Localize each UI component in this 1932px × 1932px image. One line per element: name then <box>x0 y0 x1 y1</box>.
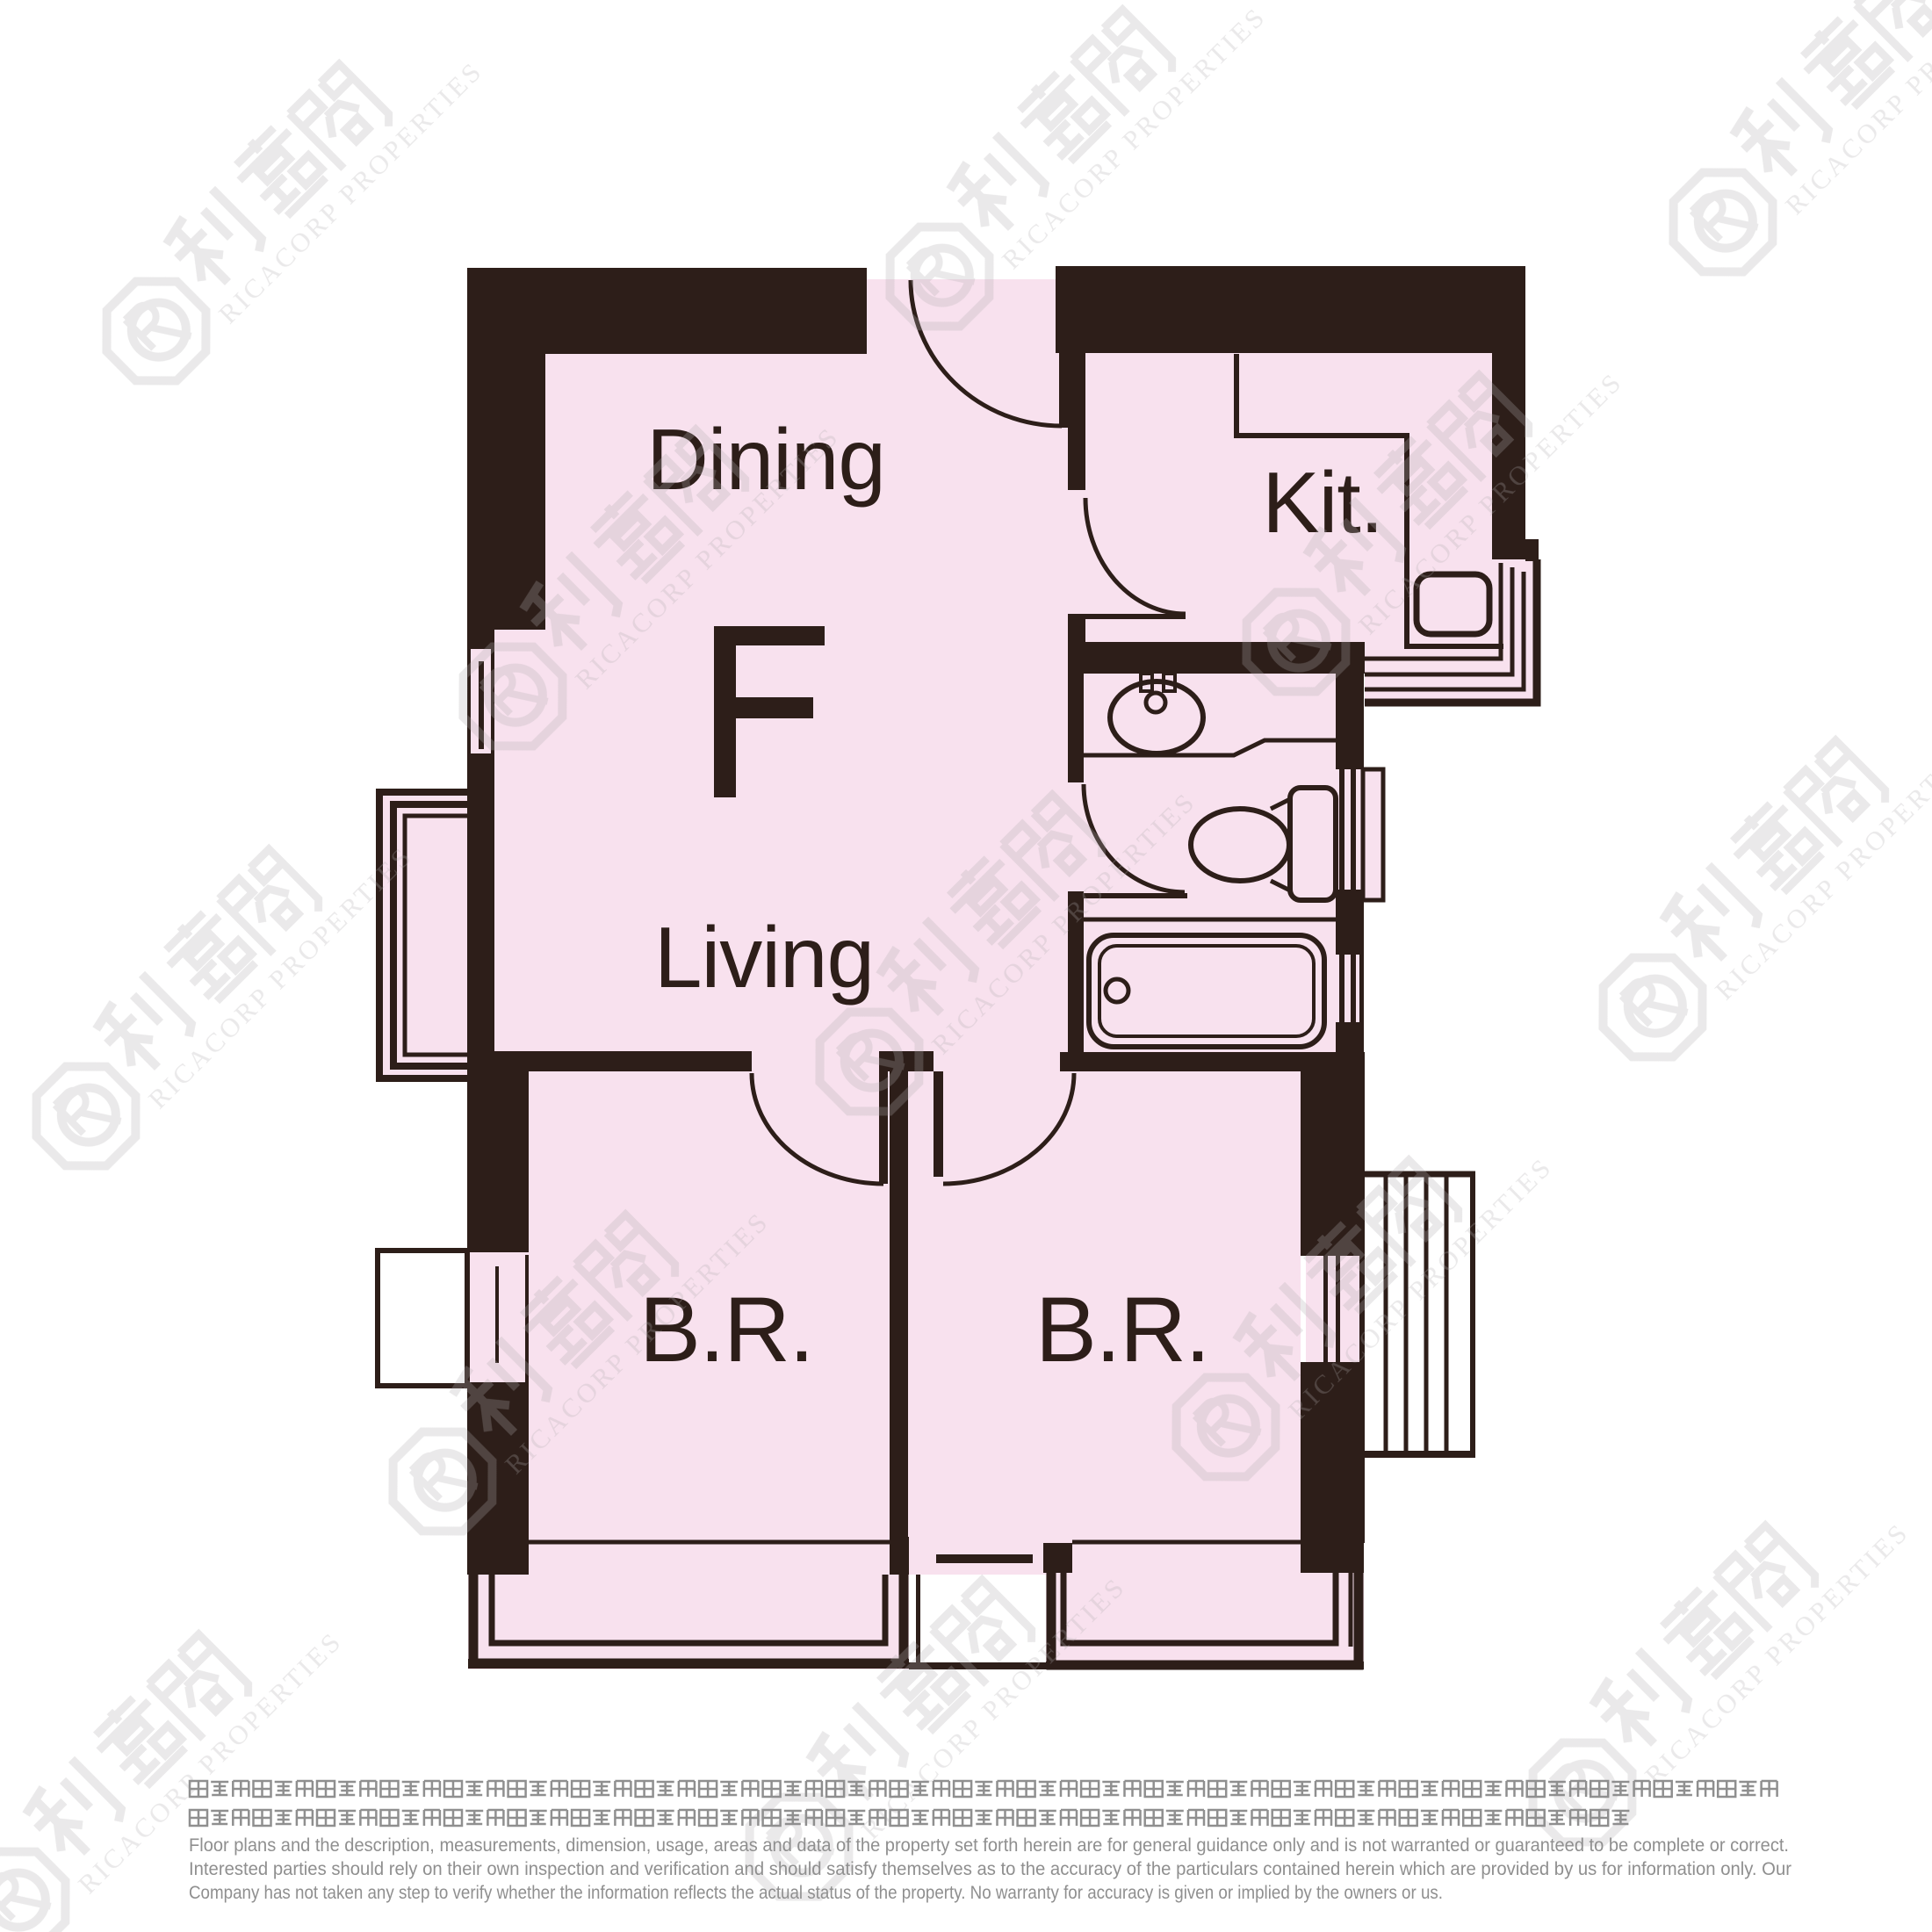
svg-text:B.R.: B.R. <box>1035 1279 1209 1381</box>
svg-text:Company has not taken any step: Company has not taken any step to verify… <box>189 1882 1443 1903</box>
svg-text:Floor plans and the descriptio: Floor plans and the description, measure… <box>189 1835 1789 1856</box>
svg-text:Living: Living <box>654 909 874 1006</box>
svg-text:Interested parties should rely: Interested parties should rely on their … <box>189 1858 1791 1879</box>
